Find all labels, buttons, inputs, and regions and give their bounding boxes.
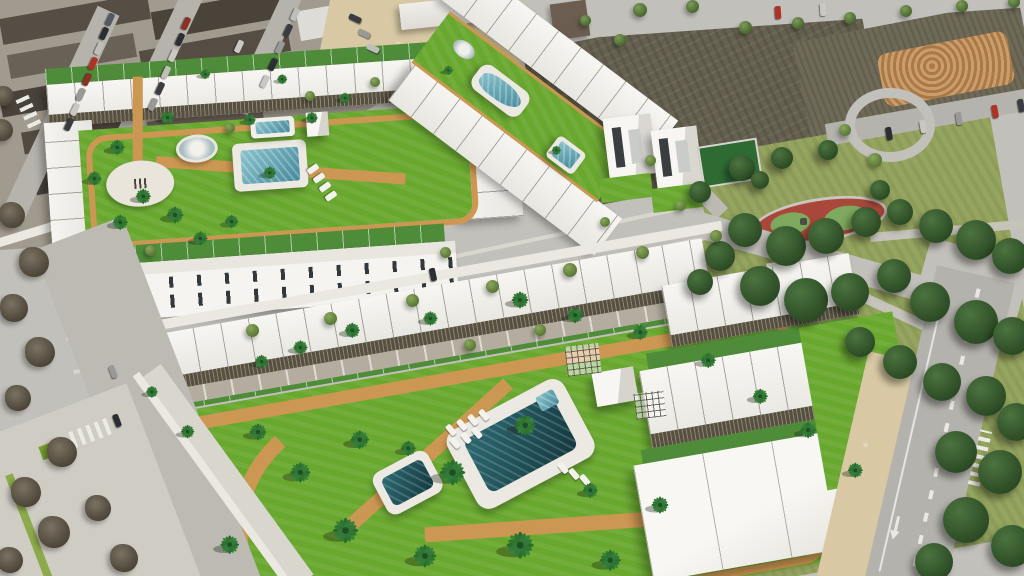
sun-lounger: [478, 408, 490, 421]
pine-tree-icon: [991, 525, 1024, 567]
bare-tree-icon: [38, 516, 70, 548]
parked-car: [283, 23, 294, 37]
palm-tree-icon: [643, 488, 677, 522]
bare-tree-icon: [0, 294, 28, 322]
pine-tree-icon: [993, 317, 1024, 355]
pine-tree-icon: [992, 238, 1024, 274]
pine-tree-icon: [771, 147, 793, 169]
median-tree-icon: [614, 34, 626, 46]
sun-lounger: [324, 190, 337, 202]
bare-tree-icon: [25, 337, 55, 367]
pine-tree-icon: [887, 199, 913, 225]
vegetation-layer: [0, 0, 1024, 576]
palm-tree-icon: [840, 455, 871, 486]
palm-tree-icon: [334, 87, 356, 109]
parked-car: [94, 41, 105, 55]
palm-tree-icon: [195, 64, 215, 84]
street-tree-icon: [645, 155, 656, 166]
street-tree-icon: [675, 200, 686, 211]
pine-tree-icon: [923, 363, 961, 401]
palm-tree-icon: [427, 447, 478, 498]
pine-tree-icon: [915, 543, 953, 576]
parked-car: [429, 268, 438, 282]
street-tree-icon: [563, 263, 577, 277]
pine-tree-icon: [851, 207, 881, 237]
parked-car: [955, 112, 963, 126]
street-tree-icon: [246, 324, 259, 337]
median-tree-icon: [792, 17, 804, 29]
parked-car: [76, 87, 87, 101]
bare-tree-icon: [5, 385, 31, 411]
bare-tree-icon: [110, 544, 138, 572]
palm-tree-icon: [416, 304, 445, 333]
parked-car: [820, 3, 827, 16]
parked-car: [64, 117, 75, 131]
parked-car: [234, 39, 245, 53]
parked-car: [112, 413, 122, 427]
palm-tree-icon: [140, 380, 164, 404]
median-tree-icon: [844, 12, 856, 24]
sun-lounger: [445, 423, 457, 436]
bare-tree-icon: [0, 547, 23, 573]
parked-car: [168, 48, 179, 62]
pine-tree-icon: [818, 140, 838, 160]
playground-equipment: [800, 218, 807, 225]
palm-tree-icon: [105, 207, 136, 238]
median-tree-icon: [1008, 0, 1020, 8]
bare-tree-icon: [0, 86, 14, 106]
palm-tree-icon: [174, 418, 201, 445]
palm-tree-icon: [154, 104, 181, 131]
street-tree-icon: [440, 247, 451, 258]
median-tree-icon: [956, 0, 968, 12]
street-tree-icon: [868, 153, 882, 167]
parked-car: [348, 13, 362, 24]
pine-tree-icon: [808, 218, 844, 254]
sun-lounger: [318, 181, 331, 193]
pine-tree-icon: [935, 431, 977, 473]
palm-tree-icon: [504, 404, 547, 447]
parked-car: [1017, 99, 1024, 113]
palm-tree-icon: [589, 539, 632, 576]
palm-tree-icon: [280, 452, 321, 493]
parked-car: [991, 105, 999, 119]
pine-tree-icon: [687, 269, 713, 295]
pine-tree-icon: [831, 273, 869, 311]
palm-tree-icon: [337, 315, 368, 346]
median-tree-icon: [633, 3, 647, 17]
pine-tree-icon: [883, 345, 917, 379]
palm-tree-icon: [503, 283, 537, 317]
bare-tree-icon: [19, 247, 49, 277]
bare-tree-icon: [11, 477, 41, 507]
pine-tree-icon: [978, 450, 1022, 494]
parked-car: [366, 43, 380, 54]
pine-tree-icon: [751, 171, 769, 189]
parked-car: [70, 102, 81, 116]
street-tree-icon: [534, 324, 546, 336]
parked-car: [155, 81, 166, 95]
pine-tree-icon: [919, 209, 953, 243]
parked-car: [275, 40, 286, 54]
parked-car: [290, 7, 301, 21]
palm-tree-icon: [80, 164, 109, 193]
street-tree-icon: [145, 245, 156, 256]
parked-car: [175, 32, 186, 46]
palm-tree-icon: [402, 533, 448, 576]
palm-tree-icon: [102, 132, 133, 163]
palm-tree-icon: [439, 61, 458, 80]
bare-tree-icon: [85, 495, 111, 521]
pine-tree-icon: [943, 497, 989, 543]
palm-tree-icon: [745, 381, 776, 412]
pine-tree-icon: [705, 241, 735, 271]
pine-tree-icon: [954, 300, 998, 344]
street-tree-icon: [324, 312, 337, 325]
street-tree-icon: [600, 217, 610, 227]
palm-tree-icon: [493, 518, 547, 572]
palm-tree-icon: [241, 415, 275, 449]
pine-tree-icon: [997, 403, 1024, 441]
pine-tree-icon: [784, 278, 828, 322]
street-tree-icon: [839, 124, 851, 136]
parked-car: [105, 12, 116, 26]
palm-tree-icon: [186, 224, 215, 253]
parked-car: [919, 120, 927, 134]
sun-lounger: [471, 426, 483, 439]
parked-car: [181, 16, 192, 30]
pine-tree-icon: [766, 226, 806, 266]
pine-tree-icon: [689, 181, 711, 203]
sun-lounger: [460, 431, 472, 444]
parked-car: [82, 72, 93, 86]
aerial-site-render: [0, 0, 1024, 576]
palm-tree-icon: [559, 299, 591, 331]
palm-tree-icon: [272, 69, 292, 89]
sun-lounger: [312, 172, 325, 184]
street-tree-icon: [636, 246, 649, 259]
pine-tree-icon: [956, 220, 996, 260]
street-tree-icon: [486, 280, 499, 293]
street-tree-icon: [225, 123, 235, 133]
parked-car: [885, 127, 893, 141]
median-tree-icon: [686, 0, 699, 13]
palm-tree-icon: [341, 421, 378, 458]
parked-car: [260, 74, 271, 88]
parked-car: [775, 6, 782, 19]
bare-tree-icon: [0, 202, 25, 228]
palm-tree-icon: [547, 141, 566, 160]
street-tree-icon: [305, 91, 315, 101]
palm-tree-icon: [211, 526, 248, 563]
bare-tree-icon: [47, 437, 77, 467]
palm-tree-icon: [625, 317, 656, 348]
street-tree-icon: [370, 77, 380, 87]
median-tree-icon: [580, 15, 591, 26]
pine-tree-icon: [870, 180, 890, 200]
parked-car: [357, 28, 371, 39]
median-tree-icon: [739, 21, 752, 34]
parked-car: [88, 56, 99, 70]
pine-tree-icon: [910, 282, 950, 322]
parked-car: [161, 65, 172, 79]
parked-car: [108, 364, 118, 378]
palm-tree-icon: [393, 433, 424, 464]
pine-tree-icon: [740, 266, 780, 306]
palm-tree-icon: [300, 106, 324, 130]
pine-tree-icon: [728, 213, 762, 247]
street-tree-icon: [464, 339, 476, 351]
sun-lounger: [557, 461, 569, 474]
palm-tree-icon: [792, 414, 824, 446]
palm-tree-icon: [693, 345, 724, 376]
palm-tree-icon: [218, 208, 245, 235]
sun-lounger: [306, 163, 319, 175]
sun-lounger: [467, 413, 479, 426]
pine-tree-icon: [877, 259, 911, 293]
sun-lounger: [456, 418, 468, 431]
palm-tree-icon: [286, 333, 315, 362]
median-tree-icon: [900, 5, 912, 17]
parked-car: [99, 26, 110, 40]
palm-tree-icon: [238, 108, 262, 132]
palm-tree-icon: [320, 505, 371, 556]
street-tree-icon: [710, 230, 722, 242]
pine-tree-icon: [845, 327, 875, 357]
palm-tree-icon: [575, 475, 606, 506]
palm-tree-icon: [248, 348, 275, 375]
palm-tree-icon: [257, 160, 283, 186]
bare-tree-icon: [0, 119, 13, 141]
